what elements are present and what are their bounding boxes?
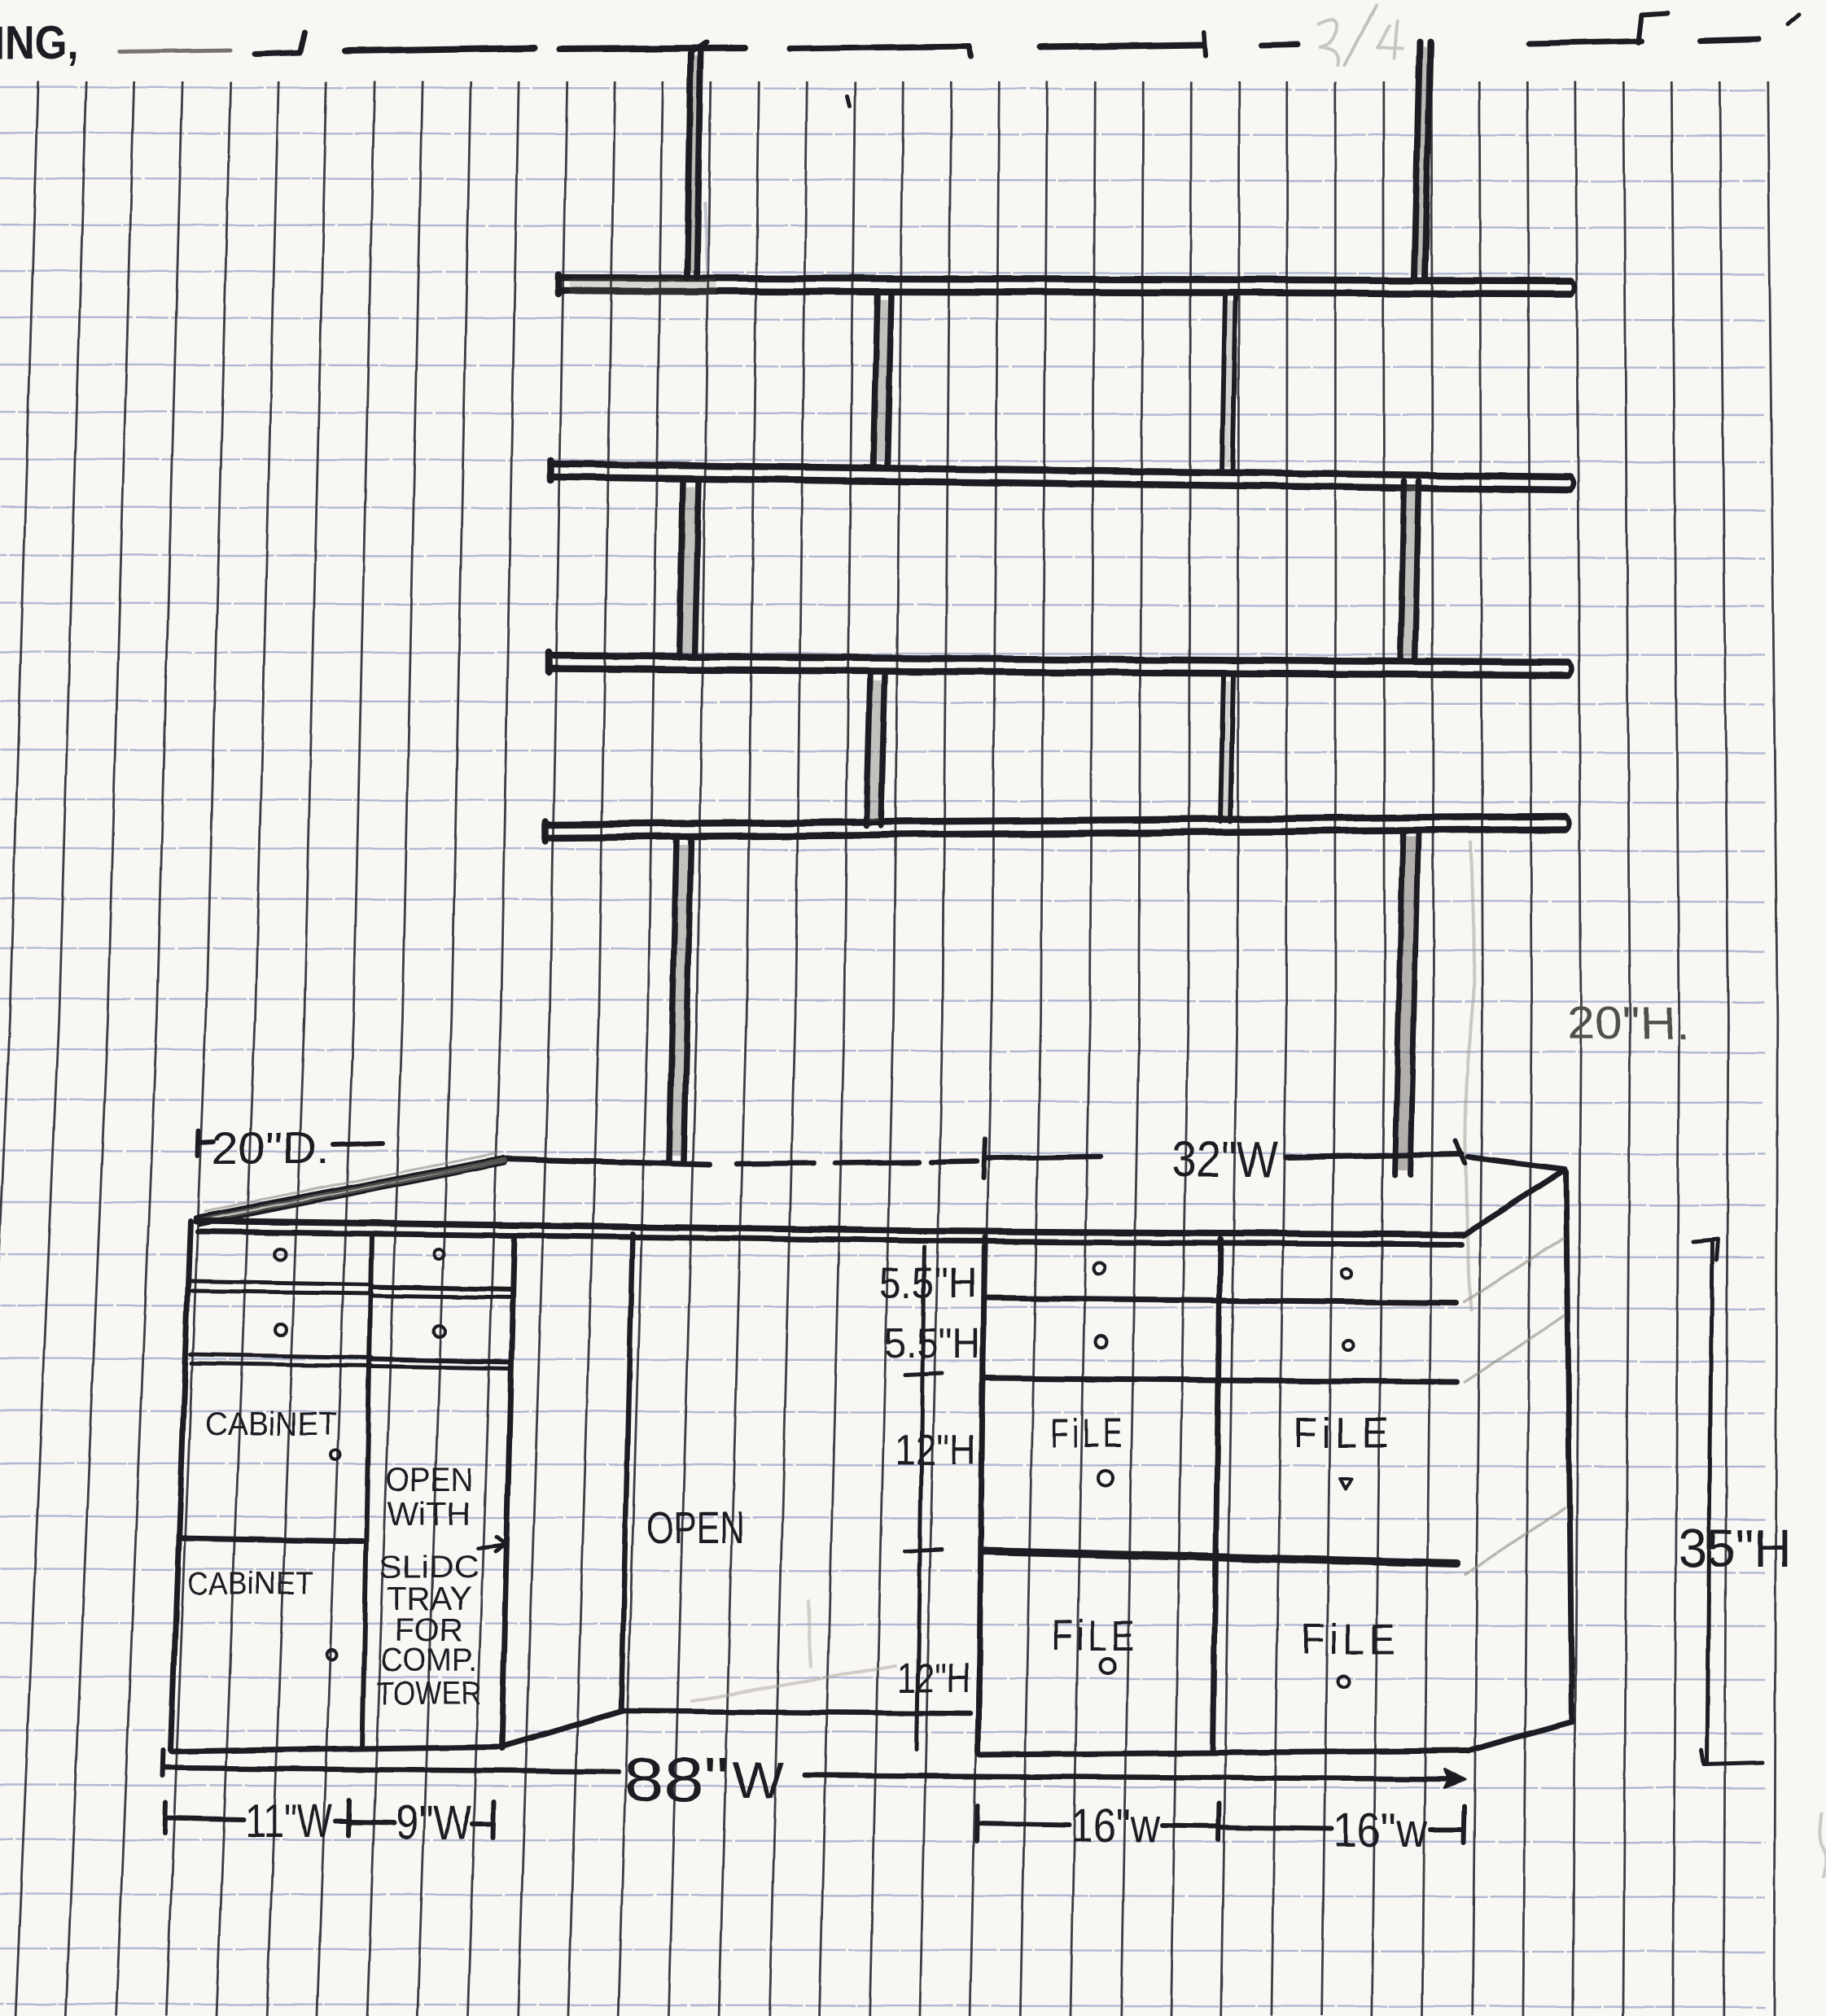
svg-text:TOWER: TOWER xyxy=(377,1676,482,1712)
svg-text:OPEN: OPEN xyxy=(646,1502,744,1553)
svg-text:20"D.: 20"D. xyxy=(212,1122,330,1174)
svg-text:CABiNET: CABiNET xyxy=(205,1406,337,1442)
svg-text:11"W: 11"W xyxy=(246,1795,332,1848)
svg-text:FiLE: FiLE xyxy=(1294,1410,1393,1457)
svg-text:5.5"H: 5.5"H xyxy=(879,1260,977,1307)
svg-text:COMP.: COMP. xyxy=(380,1642,478,1678)
svg-text:SLiDC: SLiDC xyxy=(379,1550,479,1585)
svg-text:16"w: 16"w xyxy=(1333,1804,1428,1857)
svg-text:WiTH: WiTH xyxy=(387,1496,471,1532)
svg-text:OPEN: OPEN xyxy=(385,1463,473,1498)
svg-text:9"W: 9"W xyxy=(396,1796,472,1849)
svg-text:88": 88" xyxy=(624,1746,729,1815)
svg-text:12"H: 12"H xyxy=(895,1427,976,1474)
svg-text:CABiNET: CABiNET xyxy=(187,1566,313,1602)
svg-text:5.5"H: 5.5"H xyxy=(884,1320,980,1367)
svg-text:12"H: 12"H xyxy=(897,1655,970,1702)
svg-text:W: W xyxy=(733,1752,783,1808)
svg-text:16"w: 16"w xyxy=(1071,1800,1161,1852)
svg-text:32"W: 32"W xyxy=(1172,1132,1278,1188)
svg-text:FiLE: FiLE xyxy=(1301,1616,1400,1664)
svg-text:FiLE: FiLE xyxy=(1052,1612,1138,1660)
svg-text:35"H: 35"H xyxy=(1679,1518,1791,1578)
svg-text:ING,: ING, xyxy=(0,16,78,69)
svg-text:FiLE: FiLE xyxy=(1051,1410,1125,1458)
svg-text:20"H.: 20"H. xyxy=(1567,997,1689,1048)
